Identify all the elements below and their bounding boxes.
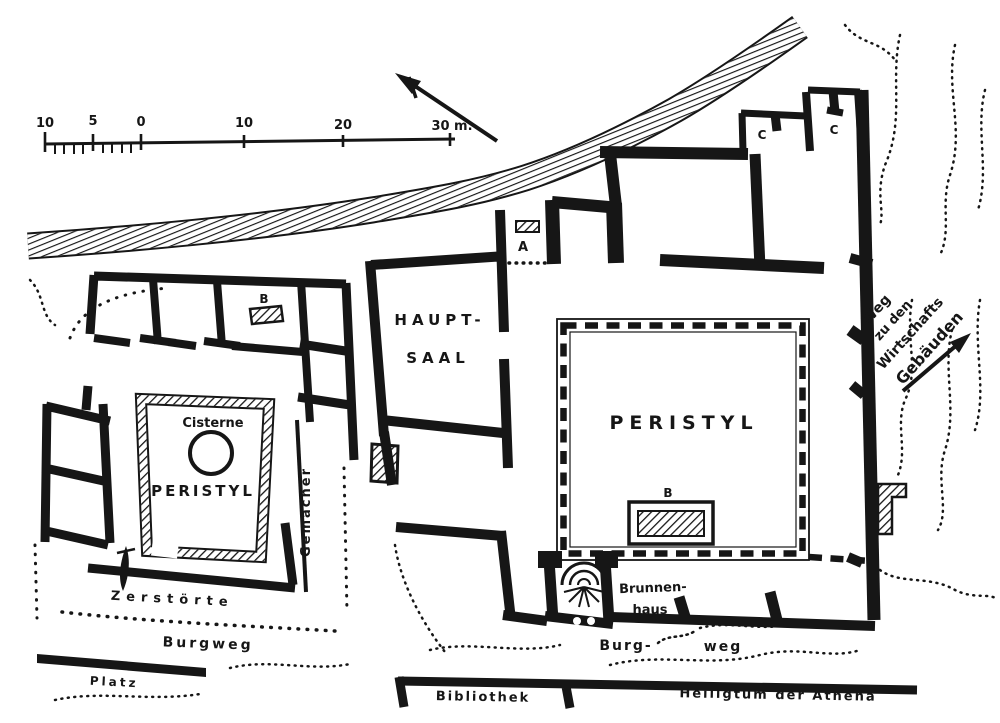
contour-line <box>975 300 980 430</box>
well-label-2: haus <box>632 603 667 618</box>
vestibule-pillar-west <box>552 200 554 264</box>
mid-partition-wall <box>755 154 760 268</box>
marker-b-label: B <box>663 486 672 500</box>
corridor-label: Gemächer <box>299 467 314 557</box>
right-peristyl-label: PERISTYL <box>609 412 758 434</box>
well-house: Brunnen- haus <box>538 551 687 625</box>
library-label: Bibliothek <box>436 689 531 706</box>
scale-bar: 10 5 0 10 20 30 m. <box>36 114 473 154</box>
street-squiggle <box>658 631 695 643</box>
fan-rays <box>564 587 604 607</box>
contour-line <box>940 45 956 255</box>
marker-c-right: C <box>830 123 839 137</box>
road-hachure <box>28 27 800 246</box>
burgweg-street: Burg- weg <box>599 631 742 655</box>
scale-label: 0 <box>136 115 145 130</box>
contour-line <box>35 545 37 618</box>
destroyed-road-label2: Burgweg <box>162 634 254 653</box>
hall-hatched-block <box>371 444 398 483</box>
well-step-notch <box>587 617 595 625</box>
contour-line <box>55 694 200 700</box>
burgweg-label-2: weg <box>704 639 742 655</box>
court-door-gap <box>152 547 178 550</box>
road-band <box>28 27 800 246</box>
left-house: Cisterne PERISTYL B Gemächer Zerstörte B… <box>42 275 354 654</box>
right-house-top-walls <box>552 152 864 340</box>
left-altar-b: B <box>250 292 283 324</box>
left-peristyl-court: Cisterne PERISTYL <box>141 399 269 557</box>
contour-line <box>395 545 445 652</box>
burgweg-label-1: Burg- <box>599 638 652 654</box>
north-arrow-head <box>395 73 421 94</box>
altar-hatched-block <box>250 306 283 324</box>
platz-wall <box>37 654 206 677</box>
scale-baseline <box>45 139 455 144</box>
colonnade-extension <box>809 557 871 561</box>
fan-arc-inner <box>578 579 590 585</box>
destroyed-road-dotted-line <box>62 612 335 631</box>
plan-canvas: 10 5 0 10 20 30 m. Cisterne PERISTYL B <box>0 0 1000 723</box>
contour-line <box>880 570 998 600</box>
altar-hatched <box>638 511 704 536</box>
marker-a-label: A <box>518 240 528 255</box>
marker-c-left: C <box>758 128 767 142</box>
contour-line <box>230 664 350 668</box>
south-boundary: Bibliothek Heiligtum der Athena <box>398 677 917 708</box>
floor-plan-svg: 10 5 0 10 20 30 m. Cisterne PERISTYL B <box>0 0 1000 723</box>
contour-line <box>845 25 895 60</box>
well-label-1: Brunnen- <box>619 580 687 597</box>
scale-label: 5 <box>88 114 97 129</box>
scale-label: 10 <box>36 116 54 131</box>
contour-line <box>430 645 560 650</box>
platz-area: Platz <box>37 654 206 690</box>
hall-label-1: HAUPT- <box>394 311 485 329</box>
sanctuary-label: Heiligtum der Athena <box>679 686 877 704</box>
contour-line <box>880 35 900 225</box>
east-hatched-wall <box>878 484 906 534</box>
east-outer-wall <box>862 90 874 620</box>
right-altar-b: B <box>629 486 713 544</box>
left-peristyl-label: PERISTYL <box>151 482 255 500</box>
right-house: C C A HAUPT- SAAL PERISTYL B <box>370 90 906 626</box>
vestibule-pillar-east <box>614 203 616 263</box>
annex-rooms-c: C C <box>741 90 862 151</box>
hall-label-2: SAAL <box>406 349 470 367</box>
platz-label: Platz <box>90 674 139 691</box>
scale-label: 10 <box>235 116 253 131</box>
well-step-notch <box>573 617 581 625</box>
cistern-circle <box>190 432 232 474</box>
contour-line <box>978 90 985 210</box>
cistern-label: Cisterne <box>182 416 243 431</box>
entrance-a: A <box>509 221 547 263</box>
contour-line <box>344 468 347 612</box>
entrance-sill <box>516 221 539 232</box>
contour-line <box>30 280 55 325</box>
destroyed-road-label1: Zerstörte <box>110 589 234 610</box>
well-fan-stairs <box>562 563 606 607</box>
scale-label: 20 <box>334 118 352 133</box>
marker-b-label: B <box>259 292 268 306</box>
